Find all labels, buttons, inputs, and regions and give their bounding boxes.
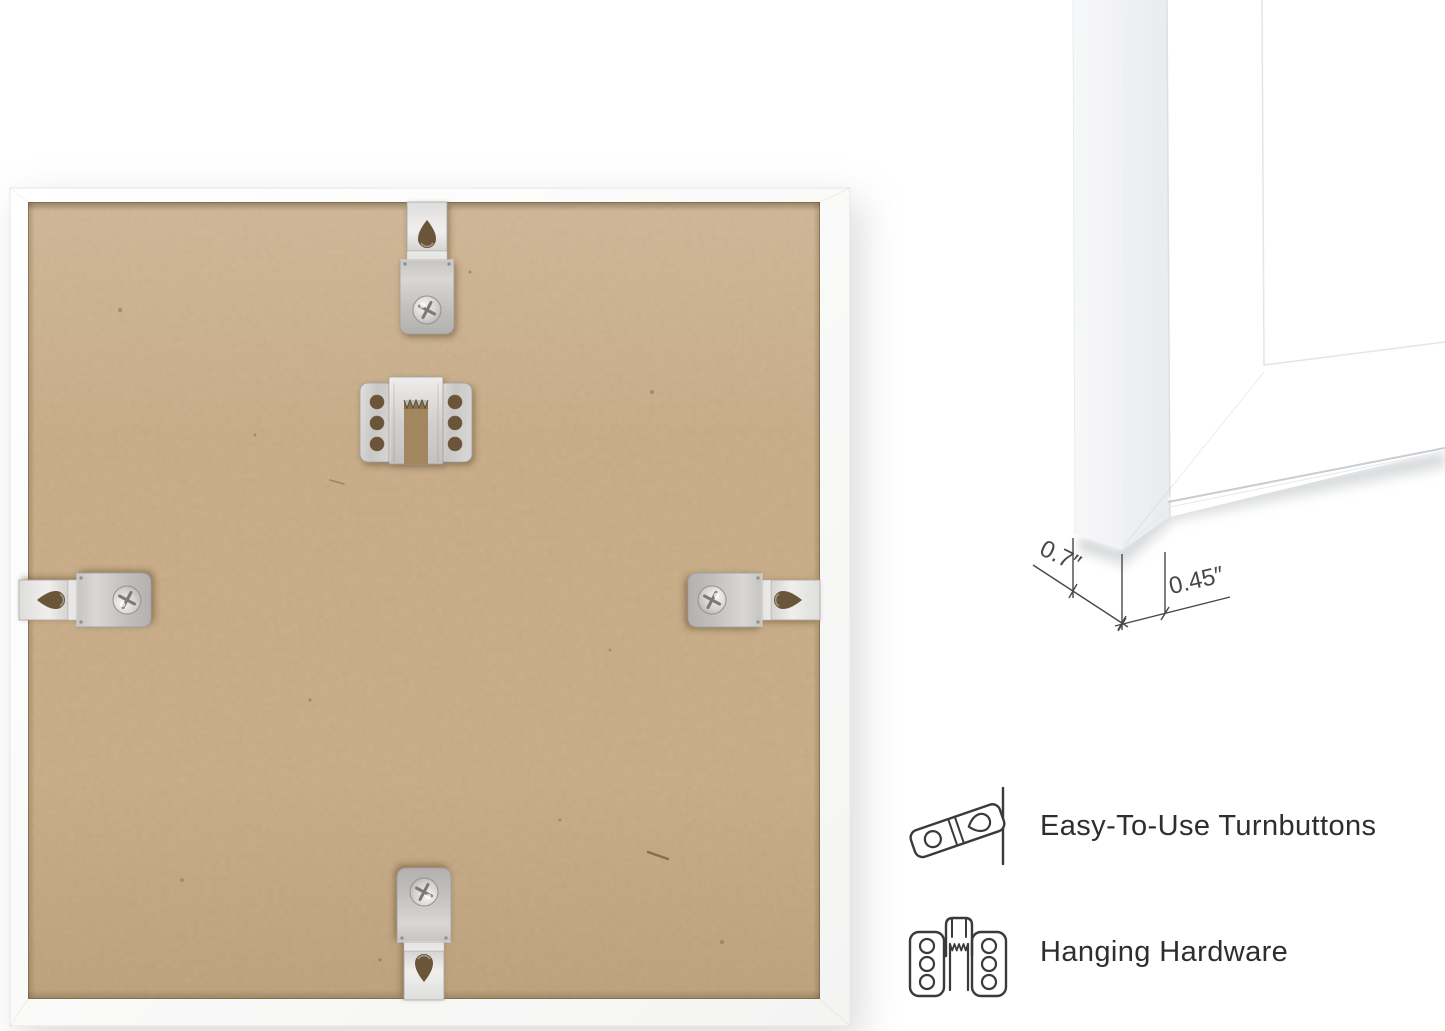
product-image-canvas: 0.7″ 0.45″ Easy-To-Use Turnbuttons [0,0,1445,1031]
feature-label-hanging-hardware: Hanging Hardware [1040,936,1288,969]
turnbutton-top [400,202,454,334]
feature-row-turnbuttons: Easy-To-Use Turnbuttons [902,784,1376,868]
feature-row-hanging-hardware: Hanging Hardware [902,904,1288,1000]
turnbutton-left [19,573,151,627]
sawtooth-cutout [404,400,428,464]
face-width-dimension-label: 0.45″ [1166,561,1226,600]
turnbutton-icon [902,784,1014,868]
depth-dimension-line [1033,565,1128,627]
frame-front-and-mat [1167,0,1445,517]
sawtooth-hanger-icon [902,904,1014,1000]
frame-side-shadow-face [1120,0,1170,550]
sawtooth-hanger [360,377,472,464]
turnbutton-bottom [397,868,451,1000]
feature-label-turnbuttons: Easy-To-Use Turnbuttons [1040,810,1376,843]
frame-side-face [1073,0,1122,550]
frame-corner-closeup: 0.7″ 0.45″ [1020,0,1445,660]
turnbutton-right [688,573,820,627]
frame-back-photo [0,180,880,1031]
width-dimension-line [1115,597,1230,626]
